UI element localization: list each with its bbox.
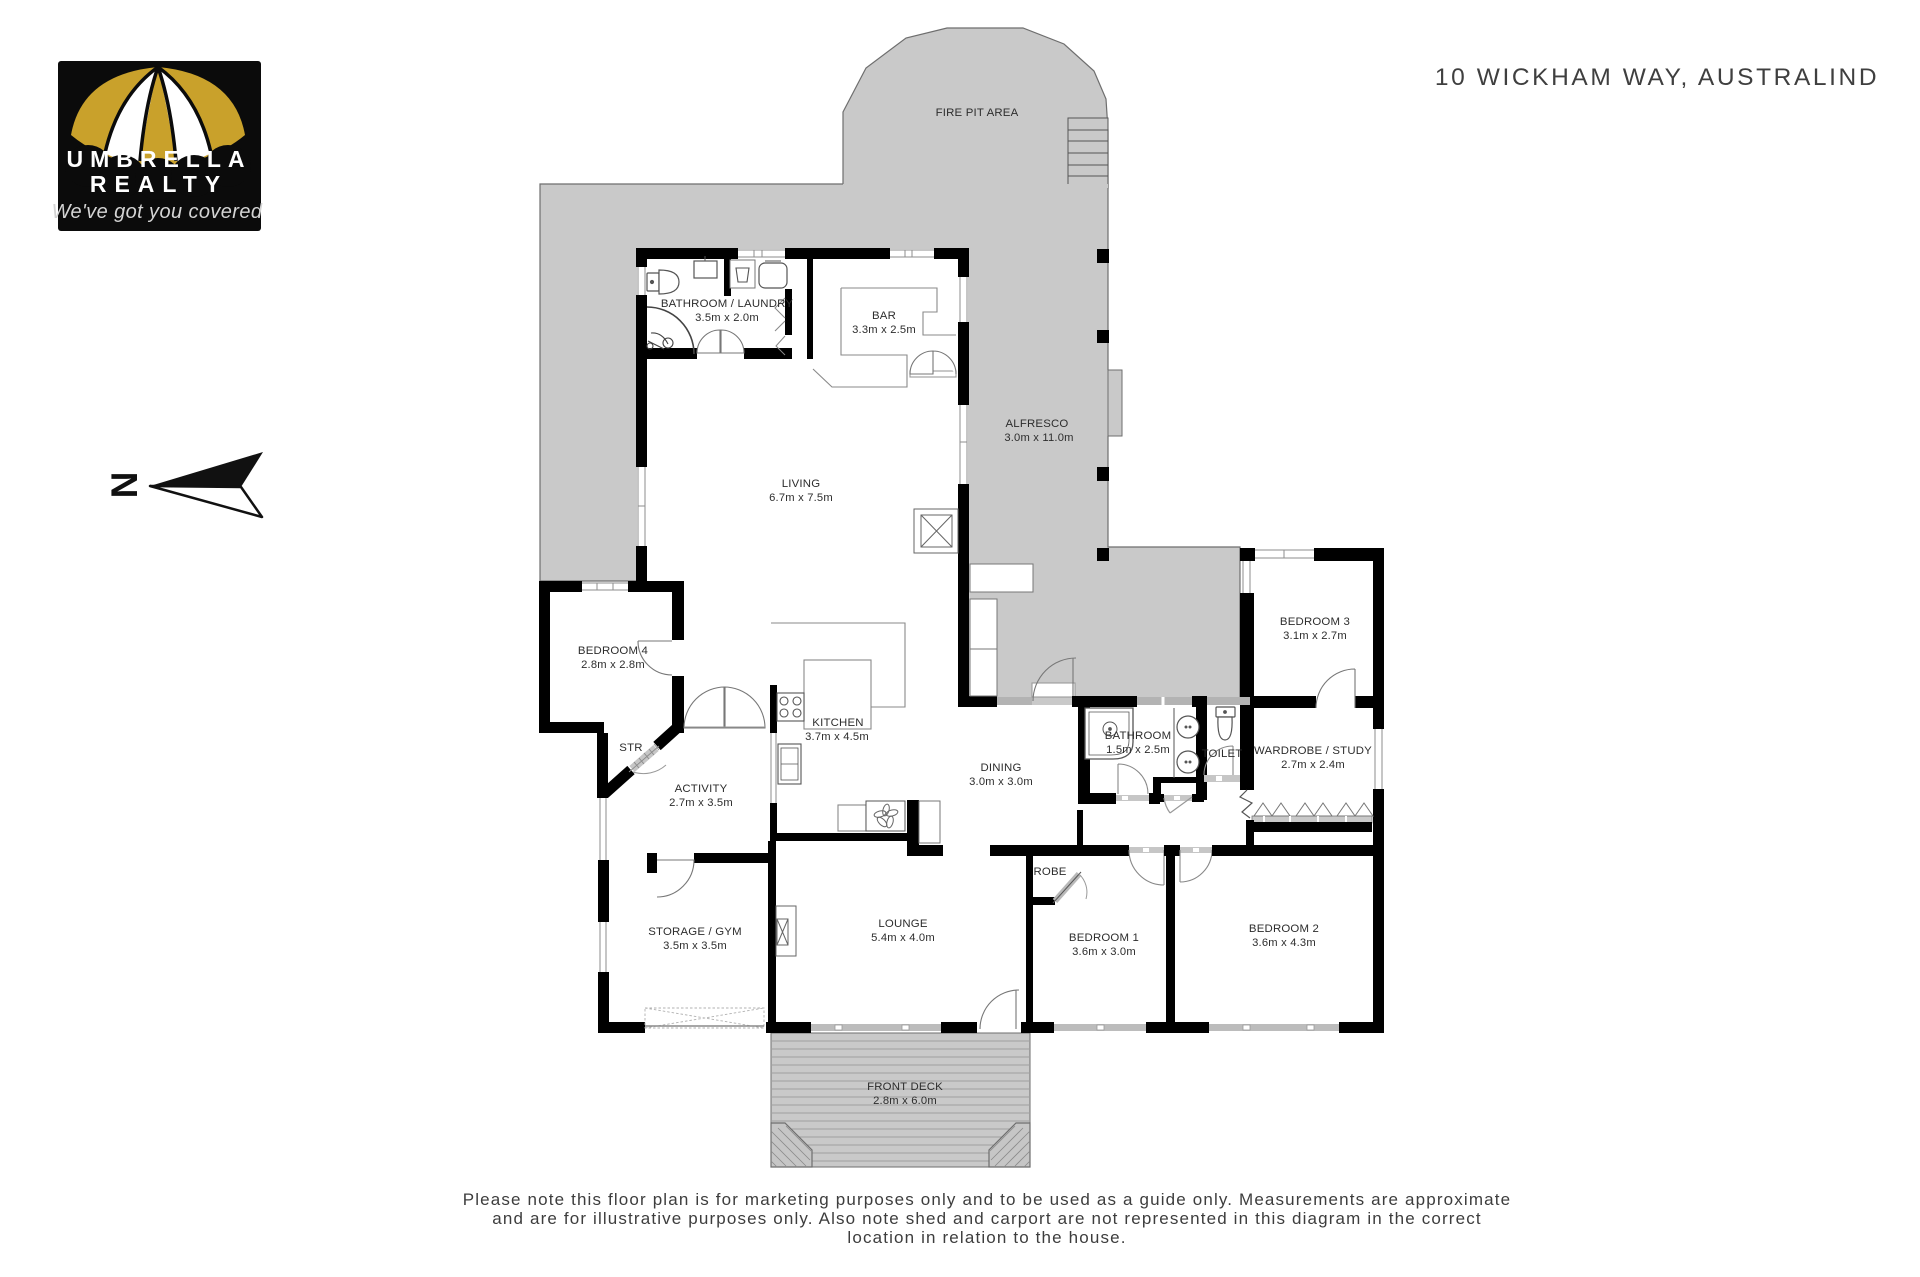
svg-text:3.0m x 3.0m: 3.0m x 3.0m	[969, 776, 1033, 788]
svg-text:BEDROOM 2: BEDROOM 2	[1249, 923, 1319, 935]
svg-text:2.7m x 2.4m: 2.7m x 2.4m	[1281, 759, 1345, 771]
svg-text:BATHROOM / LAUNDRY: BATHROOM / LAUNDRY	[661, 298, 793, 310]
svg-text:FRONT DECK: FRONT DECK	[867, 1081, 943, 1093]
svg-text:ALFRESCO: ALFRESCO	[1006, 418, 1069, 430]
svg-text:3.6m x 3.0m: 3.6m x 3.0m	[1072, 946, 1136, 958]
svg-text:3.6m x 4.3m: 3.6m x 4.3m	[1252, 937, 1316, 949]
svg-text:1.5m x 2.5m: 1.5m x 2.5m	[1106, 744, 1170, 756]
svg-text:3.7m x 4.5m: 3.7m x 4.5m	[805, 731, 869, 743]
svg-text:BAR: BAR	[872, 310, 896, 322]
svg-text:UMBRELLA: UMBRELLA	[66, 146, 251, 172]
svg-text:3.0m x 11.0m: 3.0m x 11.0m	[1004, 432, 1073, 444]
svg-text:REALTY: REALTY	[90, 171, 228, 197]
svg-text:STORAGE / GYM: STORAGE / GYM	[648, 926, 742, 938]
svg-text:WARDROBE / STUDY: WARDROBE / STUDY	[1254, 745, 1372, 757]
svg-text:5.4m x 4.0m: 5.4m x 4.0m	[871, 932, 935, 944]
svg-text:TOILET: TOILET	[1202, 748, 1243, 760]
svg-text:10 WICKHAM WAY, AUSTRALIND: 10 WICKHAM WAY, AUSTRALIND	[1435, 64, 1879, 91]
svg-text:2.7m x 3.5m: 2.7m x 3.5m	[669, 797, 733, 809]
svg-text:ACTIVITY: ACTIVITY	[675, 783, 728, 795]
svg-text:location in relation to the ho: location in relation to the house.	[847, 1228, 1126, 1247]
svg-text:DINING: DINING	[980, 762, 1021, 774]
svg-text:Please note this floor plan is: Please note this floor plan is for marke…	[463, 1190, 1511, 1209]
svg-text:BATHROOM: BATHROOM	[1105, 730, 1172, 742]
svg-text:BEDROOM 4: BEDROOM 4	[578, 645, 648, 657]
svg-text:ROBE: ROBE	[1033, 866, 1066, 878]
svg-text:2.8m x 2.8m: 2.8m x 2.8m	[581, 659, 645, 671]
svg-text:3.1m x 2.7m: 3.1m x 2.7m	[1283, 630, 1347, 642]
svg-text:FIRE PIT AREA: FIRE PIT AREA	[936, 107, 1019, 119]
svg-text:3.3m x 2.5m: 3.3m x 2.5m	[852, 324, 916, 336]
svg-text:BEDROOM 1: BEDROOM 1	[1069, 932, 1139, 944]
svg-text:We've got you covered: We've got you covered	[52, 201, 263, 223]
svg-text:2.8m x 6.0m: 2.8m x 6.0m	[873, 1095, 937, 1107]
svg-text:LIVING: LIVING	[782, 478, 821, 490]
svg-text:3.5m x 3.5m: 3.5m x 3.5m	[663, 940, 727, 952]
svg-text:STR: STR	[619, 742, 642, 754]
svg-text:BEDROOM 3: BEDROOM 3	[1280, 616, 1350, 628]
svg-text:KITCHEN: KITCHEN	[812, 717, 863, 729]
svg-text:LOUNGE: LOUNGE	[878, 918, 928, 930]
svg-text:and are for illustrative purpo: and are for illustrative purposes only. …	[492, 1209, 1481, 1228]
svg-text:6.7m x 7.5m: 6.7m x 7.5m	[769, 492, 833, 504]
svg-text:3.5m x 2.0m: 3.5m x 2.0m	[695, 312, 759, 324]
svg-text:N: N	[104, 472, 145, 499]
